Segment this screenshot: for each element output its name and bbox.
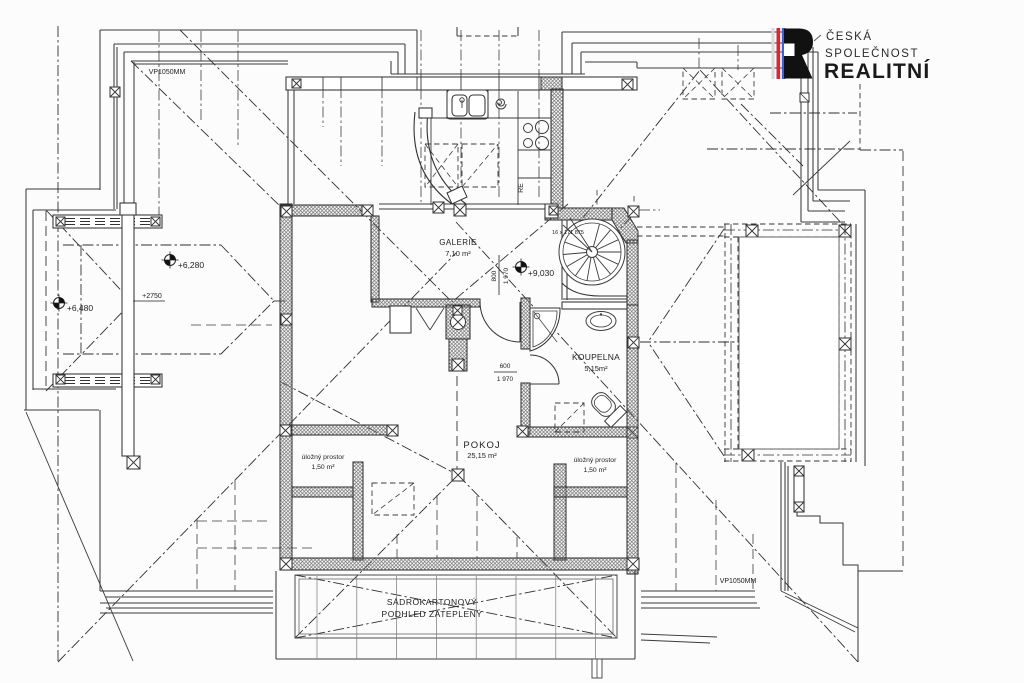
svg-text:600: 600 — [500, 363, 511, 370]
svg-text:+6,480: +6,480 — [67, 303, 94, 313]
svg-text:VP1050MM: VP1050MM — [149, 69, 186, 76]
svg-text:PODHLED ZATEPLENÝ: PODHLED ZATEPLENÝ — [382, 609, 483, 619]
svg-text:SÁDROKARTONOVÝ: SÁDROKARTONOVÝ — [387, 597, 477, 607]
svg-text:úložný prostor: úložný prostor — [574, 457, 617, 464]
svg-text:+2750: +2750 — [142, 293, 162, 300]
svg-text:RE: RE — [518, 183, 525, 193]
svg-text:úložný prostor: úložný prostor — [302, 454, 345, 461]
svg-text:1,50 m²: 1,50 m² — [311, 464, 335, 471]
svg-text:ČESKÁ: ČESKÁ — [826, 30, 873, 43]
svg-text:KOUPELNA: KOUPELNA — [572, 352, 620, 362]
svg-text:VP1050MM: VP1050MM — [720, 578, 757, 585]
svg-text:GALERIE: GALERIE — [439, 238, 476, 247]
svg-text:+9,030: +9,030 — [528, 268, 555, 278]
svg-text:7,10 m²: 7,10 m² — [445, 249, 471, 258]
svg-text:25,15 m²: 25,15 m² — [467, 451, 497, 460]
svg-text:1,50 m²: 1,50 m² — [583, 467, 607, 474]
svg-text:SPOLEČNOST: SPOLEČNOST — [825, 47, 919, 60]
svg-text:1 970: 1 970 — [503, 267, 510, 284]
svg-text:1 970: 1 970 — [497, 376, 514, 383]
svg-text:REALITNÍ: REALITNÍ — [824, 60, 930, 83]
svg-text:800: 800 — [491, 270, 498, 281]
svg-text:5,15m²: 5,15m² — [584, 364, 608, 373]
svg-text:+6,280: +6,280 — [178, 260, 205, 270]
svg-text:POKOJ: POKOJ — [463, 440, 500, 451]
svg-text:16 x 171 875: 16 x 171 875 — [552, 230, 584, 236]
